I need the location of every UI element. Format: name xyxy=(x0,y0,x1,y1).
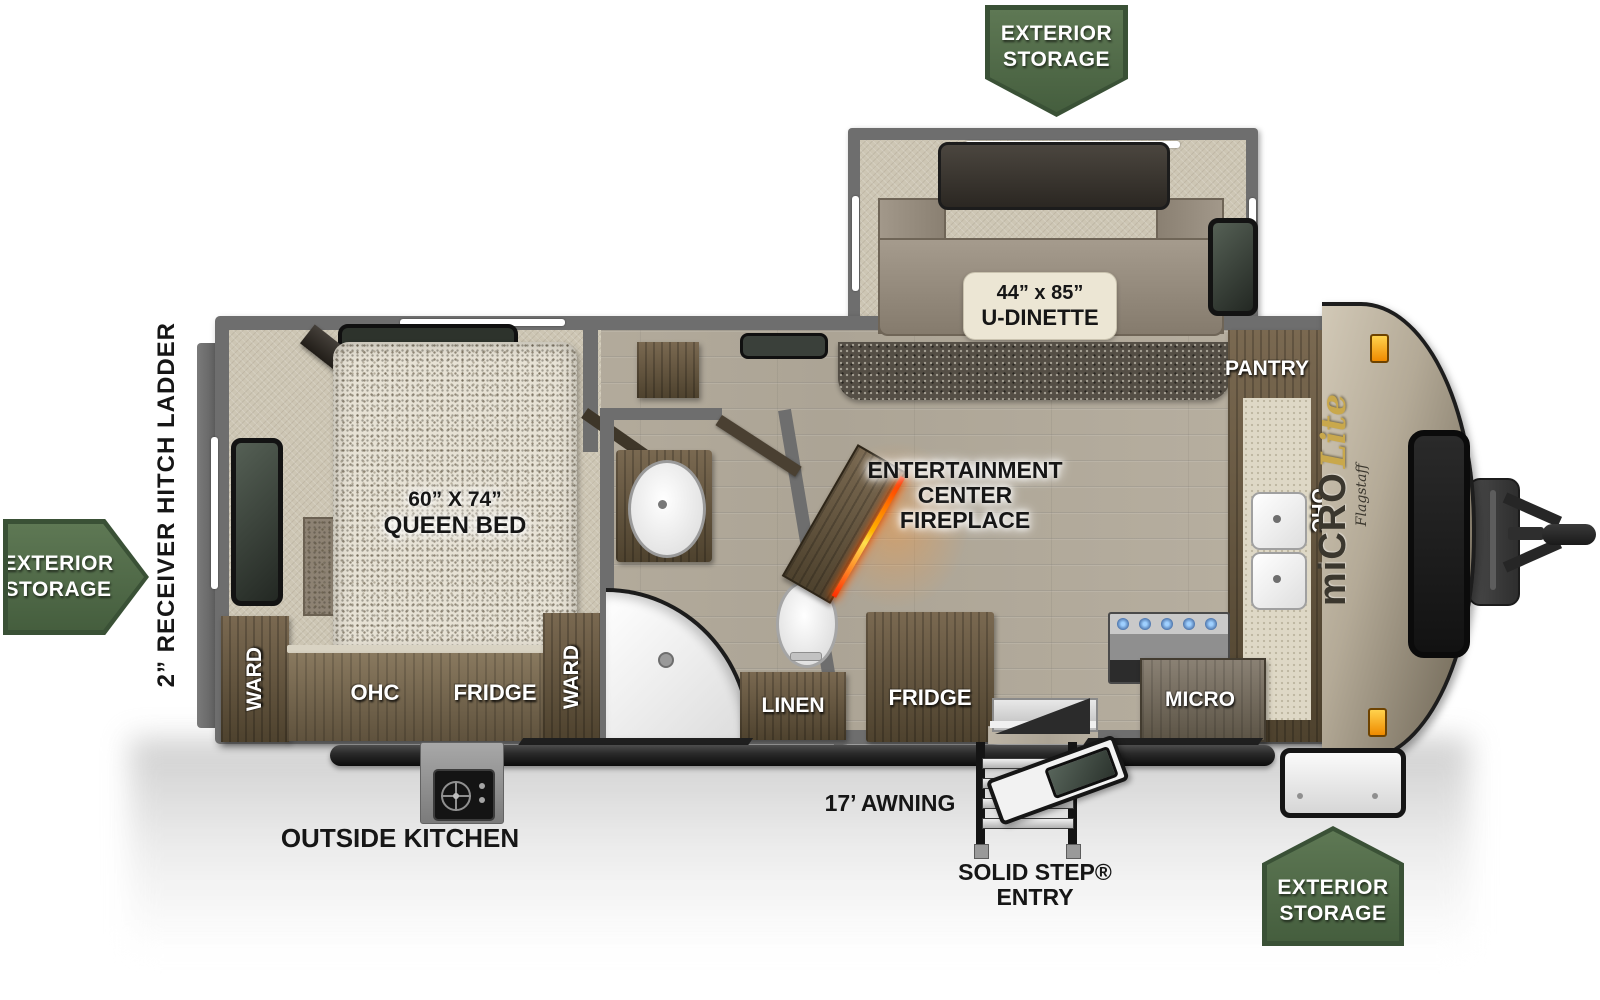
entertainment-line2: CENTER xyxy=(862,483,1068,508)
bed-size: 60” X 74” xyxy=(365,488,545,512)
badge-left-line1: EXTERIOR xyxy=(2,551,113,577)
ward-right-cabinet: WARD xyxy=(543,613,601,741)
badge-bottom-line2: STORAGE xyxy=(1280,901,1387,927)
outside-kitchen-label: OUTSIDE KITCHEN xyxy=(280,824,520,853)
bed-foot-shelf xyxy=(287,645,549,653)
storage-door-screw xyxy=(1297,793,1303,799)
burner xyxy=(1205,618,1217,630)
hall-vent xyxy=(740,333,828,359)
wall-accent xyxy=(852,196,859,291)
badge-top-line2: STORAGE xyxy=(1003,47,1110,73)
toilet-seat-hinge xyxy=(790,652,822,661)
dinette-name: U-DINETTE xyxy=(981,305,1098,331)
exterior-storage-badge-bottom: EXTERIOR STORAGE xyxy=(1262,826,1404,946)
dinette-window xyxy=(1208,218,1258,316)
bed-label: 60” X 74” QUEEN BED xyxy=(365,488,545,540)
entry-step-foot xyxy=(974,844,989,859)
entertainment-line1: ENTERTAINMENT xyxy=(862,458,1068,483)
living-fridge-label: FRIDGE xyxy=(880,685,980,711)
badge-face: EXTERIOR STORAGE xyxy=(1267,831,1399,941)
entry-label-line1: SOLID STEP® xyxy=(950,860,1120,885)
storage-compartment-door xyxy=(1280,748,1406,818)
hitch-coupler xyxy=(1542,524,1596,545)
entry-step xyxy=(982,818,1074,829)
outside-kitchen-unit xyxy=(420,742,504,824)
burner-icon xyxy=(441,781,471,811)
brand-trim: Lite xyxy=(1314,394,1354,468)
sink-drain-upper xyxy=(1273,515,1281,523)
knob xyxy=(479,783,485,789)
wall-accent xyxy=(211,437,218,589)
hall-cabinet xyxy=(637,342,699,398)
marker-light-bottom xyxy=(1368,708,1387,737)
bed-name: QUEEN BED xyxy=(365,512,545,540)
dinette-label-plate: 44” x 85” U-DINETTE xyxy=(963,272,1117,340)
badge-top-line1: EXTERIOR xyxy=(1001,21,1112,47)
marker-light-top xyxy=(1370,334,1389,363)
badge-face: EXTERIOR STORAGE xyxy=(990,10,1123,112)
entry-label: SOLID STEP® ENTRY xyxy=(950,860,1120,911)
rear-features-text: 2” RECEIVER HITCH LADDER xyxy=(153,322,181,687)
micro-label: MICRO xyxy=(1155,688,1245,712)
floorplan-canvas: 2” RECEIVER HITCH LADDER 44” x 85” U-DIN… xyxy=(0,0,1600,1000)
entry-step-foot xyxy=(1066,844,1081,859)
pantry-label: PANTRY xyxy=(1212,357,1322,381)
burner-icon-center xyxy=(453,793,459,799)
burner xyxy=(1161,618,1173,630)
ward-left-cabinet: WARD xyxy=(221,616,289,742)
storage-door-screw xyxy=(1372,793,1378,799)
brand-model: miCRO xyxy=(1312,472,1355,606)
bedroom-fridge-label: FRIDGE xyxy=(450,680,540,706)
linen-label: LINEN xyxy=(748,694,838,718)
badge-left-line2: STORAGE xyxy=(5,577,112,603)
rear-features-label: 2” RECEIVER HITCH LADDER xyxy=(144,332,190,678)
entertainment-label: ENTERTAINMENT CENTER FIREPLACE xyxy=(862,458,1068,533)
badge-bottom-line1: EXTERIOR xyxy=(1277,875,1388,901)
dinette-size: 44” x 85” xyxy=(997,282,1084,305)
knob xyxy=(479,797,485,803)
bedroom-wall xyxy=(583,330,598,452)
burner xyxy=(1183,618,1195,630)
jack-bar xyxy=(1508,527,1544,540)
bath-sink-drain xyxy=(658,500,667,509)
entry-label-line2: ENTRY xyxy=(950,885,1120,910)
dinette-table xyxy=(938,142,1170,210)
burner xyxy=(1139,618,1151,630)
awning-label: 17’ AWNING xyxy=(800,791,980,816)
front-window xyxy=(1408,430,1470,658)
badge-face: EXTERIOR STORAGE xyxy=(8,524,144,630)
galley-counter xyxy=(838,342,1230,400)
bath-wall-top xyxy=(600,408,722,420)
brand-make: Flagstaff xyxy=(1354,464,1370,527)
exterior-storage-badge-left: EXTERIOR STORAGE xyxy=(3,519,149,635)
shower-drain xyxy=(658,652,674,668)
bath-sink xyxy=(628,460,706,558)
burner xyxy=(1117,618,1129,630)
sink-drain-lower xyxy=(1273,575,1281,583)
ward-left-label: WARD xyxy=(243,647,267,711)
entertainment-line3: FIREPLACE xyxy=(862,508,1068,533)
bedroom-window xyxy=(231,438,283,606)
living-fridge-cabinet xyxy=(866,612,994,742)
exterior-storage-badge-top: EXTERIOR STORAGE xyxy=(985,5,1128,117)
ward-right-label: WARD xyxy=(560,645,584,709)
propane-cover-groove xyxy=(1490,490,1496,590)
brand-logo: miCRO Lite Flagstaff xyxy=(1312,405,1402,595)
outside-kitchen-panel xyxy=(433,769,495,821)
bedroom-ohc-label: OHC xyxy=(340,680,410,706)
